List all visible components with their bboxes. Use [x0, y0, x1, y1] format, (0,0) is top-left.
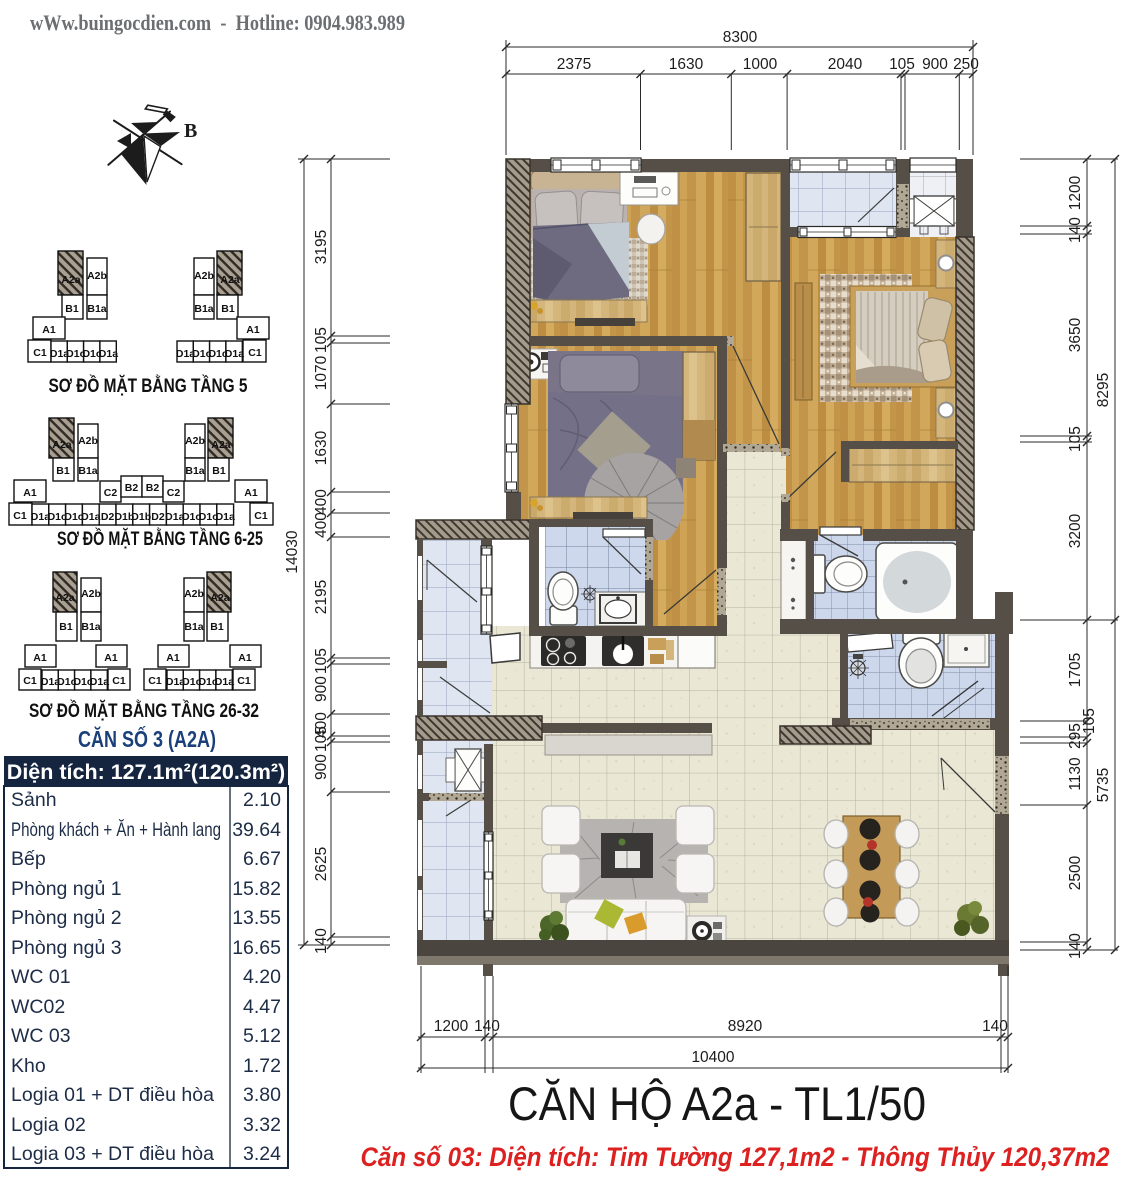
- svg-text:39.64: 39.64: [232, 819, 281, 841]
- svg-text:13.55: 13.55: [232, 907, 281, 929]
- svg-text:Phòng ngủ 2: Phòng ngủ 2: [11, 907, 122, 929]
- svg-text:C1: C1: [254, 510, 268, 522]
- svg-text:B1: B1: [210, 621, 224, 633]
- svg-text:WC02: WC02: [11, 996, 65, 1018]
- svg-text:C1: C1: [13, 510, 27, 522]
- svg-text:5735: 5735: [1095, 768, 1112, 802]
- svg-text:A2b: A2b: [185, 435, 205, 447]
- svg-text:4.47: 4.47: [243, 996, 281, 1018]
- svg-text:A2b: A2b: [87, 270, 107, 282]
- svg-text:C2: C2: [167, 487, 181, 499]
- svg-text:3.32: 3.32: [243, 1114, 281, 1136]
- svg-text:2195: 2195: [313, 580, 330, 614]
- svg-text:CĂN SỐ 3 (A2A): CĂN SỐ 3 (A2A): [78, 725, 216, 752]
- svg-text:A2a: A2a: [211, 439, 230, 451]
- svg-text:105: 105: [313, 327, 330, 353]
- svg-text:A2b: A2b: [81, 588, 101, 600]
- svg-text:SƠ ĐỒ MẶT BẰNG TẦNG 26-32: SƠ ĐỒ MẶT BẰNG TẦNG 26-32: [29, 700, 259, 722]
- svg-text:SƠ ĐỒ MẶT BẰNG TẦNG 6-25: SƠ ĐỒ MẶT BẰNG TẦNG 6-25: [57, 528, 263, 550]
- svg-text:C1: C1: [23, 675, 37, 687]
- svg-text:400: 400: [313, 512, 330, 538]
- svg-text:A1: A1: [166, 652, 180, 664]
- svg-text:140: 140: [982, 1018, 1008, 1035]
- svg-text:10400: 10400: [691, 1049, 734, 1066]
- svg-text:C1: C1: [112, 675, 126, 687]
- svg-text:B1: B1: [212, 465, 226, 477]
- svg-text:Phòng ngủ 1: Phòng ngủ 1: [11, 878, 122, 900]
- svg-text:B1a: B1a: [184, 621, 203, 633]
- svg-text:D1a: D1a: [225, 348, 244, 360]
- svg-text:B1a: B1a: [81, 621, 100, 633]
- svg-text:250: 250: [953, 56, 979, 73]
- svg-text:3195: 3195: [313, 230, 330, 264]
- svg-text:3650: 3650: [1067, 317, 1084, 352]
- svg-text:295: 295: [1067, 723, 1084, 749]
- svg-text:B: B: [184, 120, 197, 142]
- svg-text:A1: A1: [42, 324, 56, 336]
- svg-text:B1: B1: [221, 303, 235, 315]
- svg-text:A1: A1: [23, 487, 37, 499]
- svg-text:B1: B1: [56, 465, 70, 477]
- svg-text:B1a: B1a: [87, 303, 106, 315]
- svg-text:15.82: 15.82: [232, 878, 281, 900]
- svg-text:A2a: A2a: [61, 274, 80, 286]
- svg-text:Logia 02: Logia 02: [11, 1114, 86, 1136]
- svg-text:D1a: D1a: [99, 348, 118, 360]
- svg-text:B2: B2: [125, 482, 139, 494]
- svg-text:D2: D2: [101, 511, 115, 523]
- svg-text:6.67: 6.67: [243, 848, 281, 870]
- svg-text:Căn số 03: Diện tích: Tim Tườn: Căn số 03: Diện tích: Tim Tường 127,1m2 …: [361, 1142, 1110, 1172]
- svg-text:Sảnh: Sảnh: [11, 789, 57, 811]
- svg-text:A2a: A2a: [52, 439, 71, 451]
- svg-text:B1a: B1a: [194, 303, 213, 315]
- svg-text:3.24: 3.24: [243, 1143, 281, 1165]
- svg-text:B1a: B1a: [185, 465, 204, 477]
- svg-text:WC 01: WC 01: [11, 966, 71, 988]
- svg-text:A1: A1: [246, 324, 260, 336]
- svg-text:2.10: 2.10: [243, 789, 281, 811]
- svg-text:105: 105: [313, 648, 330, 674]
- svg-text:1000: 1000: [743, 56, 778, 73]
- svg-text:C1: C1: [33, 347, 47, 359]
- svg-text:140: 140: [313, 928, 330, 954]
- svg-text:SƠ ĐỒ MẶT BẰNG TẦNG 5: SƠ ĐỒ MẶT BẰNG TẦNG 5: [49, 375, 248, 397]
- svg-text:2500: 2500: [1067, 855, 1084, 890]
- svg-text:D1a: D1a: [216, 511, 235, 523]
- svg-text:1630: 1630: [669, 56, 704, 73]
- svg-text:1130: 1130: [1067, 757, 1084, 791]
- svg-text:2375: 2375: [557, 56, 591, 73]
- svg-text:Phòng khách + Ăn + Hành lang: Phòng khách + Ăn + Hành lang: [11, 818, 221, 841]
- svg-text:B1a: B1a: [78, 465, 97, 477]
- svg-text:D1a: D1a: [215, 676, 234, 688]
- svg-text:8920: 8920: [728, 1018, 763, 1035]
- svg-text:105: 105: [1067, 426, 1084, 452]
- svg-text:D1a: D1a: [81, 511, 100, 523]
- svg-text:400: 400: [313, 489, 330, 515]
- svg-text:WC 03: WC 03: [11, 1025, 71, 1047]
- svg-text:A2a: A2a: [210, 592, 229, 604]
- svg-text:14030: 14030: [284, 530, 301, 573]
- svg-text:3200: 3200: [1067, 513, 1084, 548]
- svg-text:Diện tích: 127.1m²(120.3m²): Diện tích: 127.1m²(120.3m²): [7, 760, 285, 784]
- svg-text:1200: 1200: [434, 1018, 469, 1035]
- svg-text:A1: A1: [244, 487, 258, 499]
- svg-text:B1: B1: [59, 621, 73, 633]
- svg-text:1630: 1630: [313, 430, 330, 465]
- svg-text:A1: A1: [104, 652, 118, 664]
- svg-text:2040: 2040: [828, 56, 863, 73]
- svg-text:4.20: 4.20: [243, 966, 281, 988]
- svg-text:B2: B2: [146, 482, 160, 494]
- svg-text:Kho: Kho: [11, 1055, 46, 1077]
- svg-text:140: 140: [474, 1018, 500, 1035]
- svg-text:C1: C1: [237, 675, 251, 687]
- svg-text:Phòng ngủ 3: Phòng ngủ 3: [11, 937, 122, 959]
- svg-text:D1a: D1a: [90, 676, 109, 688]
- svg-text:5.12: 5.12: [243, 1025, 281, 1047]
- svg-text:16.65: 16.65: [232, 937, 281, 959]
- svg-text:2625: 2625: [313, 847, 330, 881]
- svg-text:A2b: A2b: [184, 588, 204, 600]
- svg-text:D2: D2: [151, 511, 165, 523]
- svg-text:C1: C1: [248, 347, 262, 359]
- svg-text:A2a: A2a: [220, 274, 239, 286]
- svg-text:8295: 8295: [1095, 373, 1112, 407]
- svg-text:A2b: A2b: [194, 270, 214, 282]
- svg-text:3.80: 3.80: [243, 1084, 281, 1106]
- svg-text:Logia 01 + DT điều hòa: Logia 01 + DT điều hòa: [11, 1084, 214, 1106]
- svg-text:1200: 1200: [1067, 175, 1084, 210]
- svg-text:1070: 1070: [313, 355, 330, 390]
- svg-text:Logia 03 + DT điều hòa: Logia 03 + DT điều hòa: [11, 1143, 214, 1165]
- svg-text:1705: 1705: [1067, 653, 1084, 687]
- svg-text:C1: C1: [148, 675, 162, 687]
- svg-text:105: 105: [313, 726, 330, 752]
- svg-text:CĂN HỘ A2a - TL1/50: CĂN HỘ A2a - TL1/50: [508, 1077, 926, 1130]
- svg-text:105: 105: [889, 56, 915, 73]
- svg-text:wWw.buingocdien.com - Hotlin: wWw.buingocdien.com - Hotline: 0904.983.…: [30, 10, 405, 35]
- svg-text:900: 900: [313, 754, 330, 780]
- svg-text:A2b: A2b: [78, 435, 98, 447]
- svg-text:900: 900: [922, 56, 948, 73]
- svg-text:D1b: D1b: [131, 511, 151, 523]
- svg-text:A2a: A2a: [55, 592, 74, 604]
- svg-text:C2: C2: [104, 487, 118, 499]
- svg-text:900: 900: [313, 676, 330, 702]
- svg-text:8300: 8300: [723, 29, 758, 46]
- svg-text:1.72: 1.72: [243, 1055, 281, 1077]
- svg-text:140: 140: [1067, 217, 1084, 243]
- svg-text:B1: B1: [65, 303, 79, 315]
- svg-text:140: 140: [1067, 933, 1084, 959]
- svg-text:A1: A1: [33, 652, 47, 664]
- svg-text:Bếp: Bếp: [11, 848, 46, 870]
- svg-text:A1: A1: [238, 652, 252, 664]
